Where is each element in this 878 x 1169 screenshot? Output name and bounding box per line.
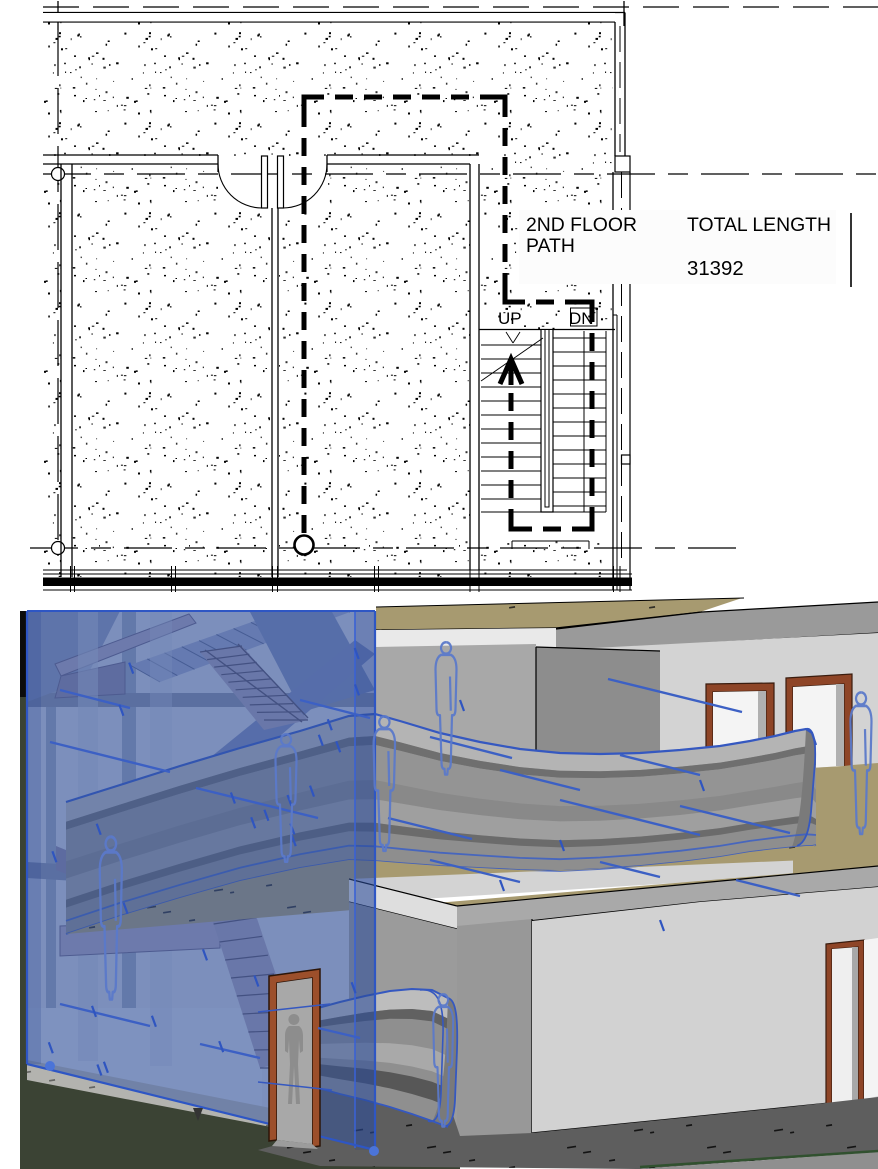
- svg-text:UP: UP: [498, 309, 522, 328]
- svg-text:2ND FLOOR: 2ND FLOOR: [526, 214, 637, 236]
- svg-text:PATH: PATH: [526, 235, 575, 257]
- svg-text:TOTAL LENGTH: TOTAL LENGTH: [687, 214, 831, 236]
- svg-text:31392: 31392: [687, 258, 744, 280]
